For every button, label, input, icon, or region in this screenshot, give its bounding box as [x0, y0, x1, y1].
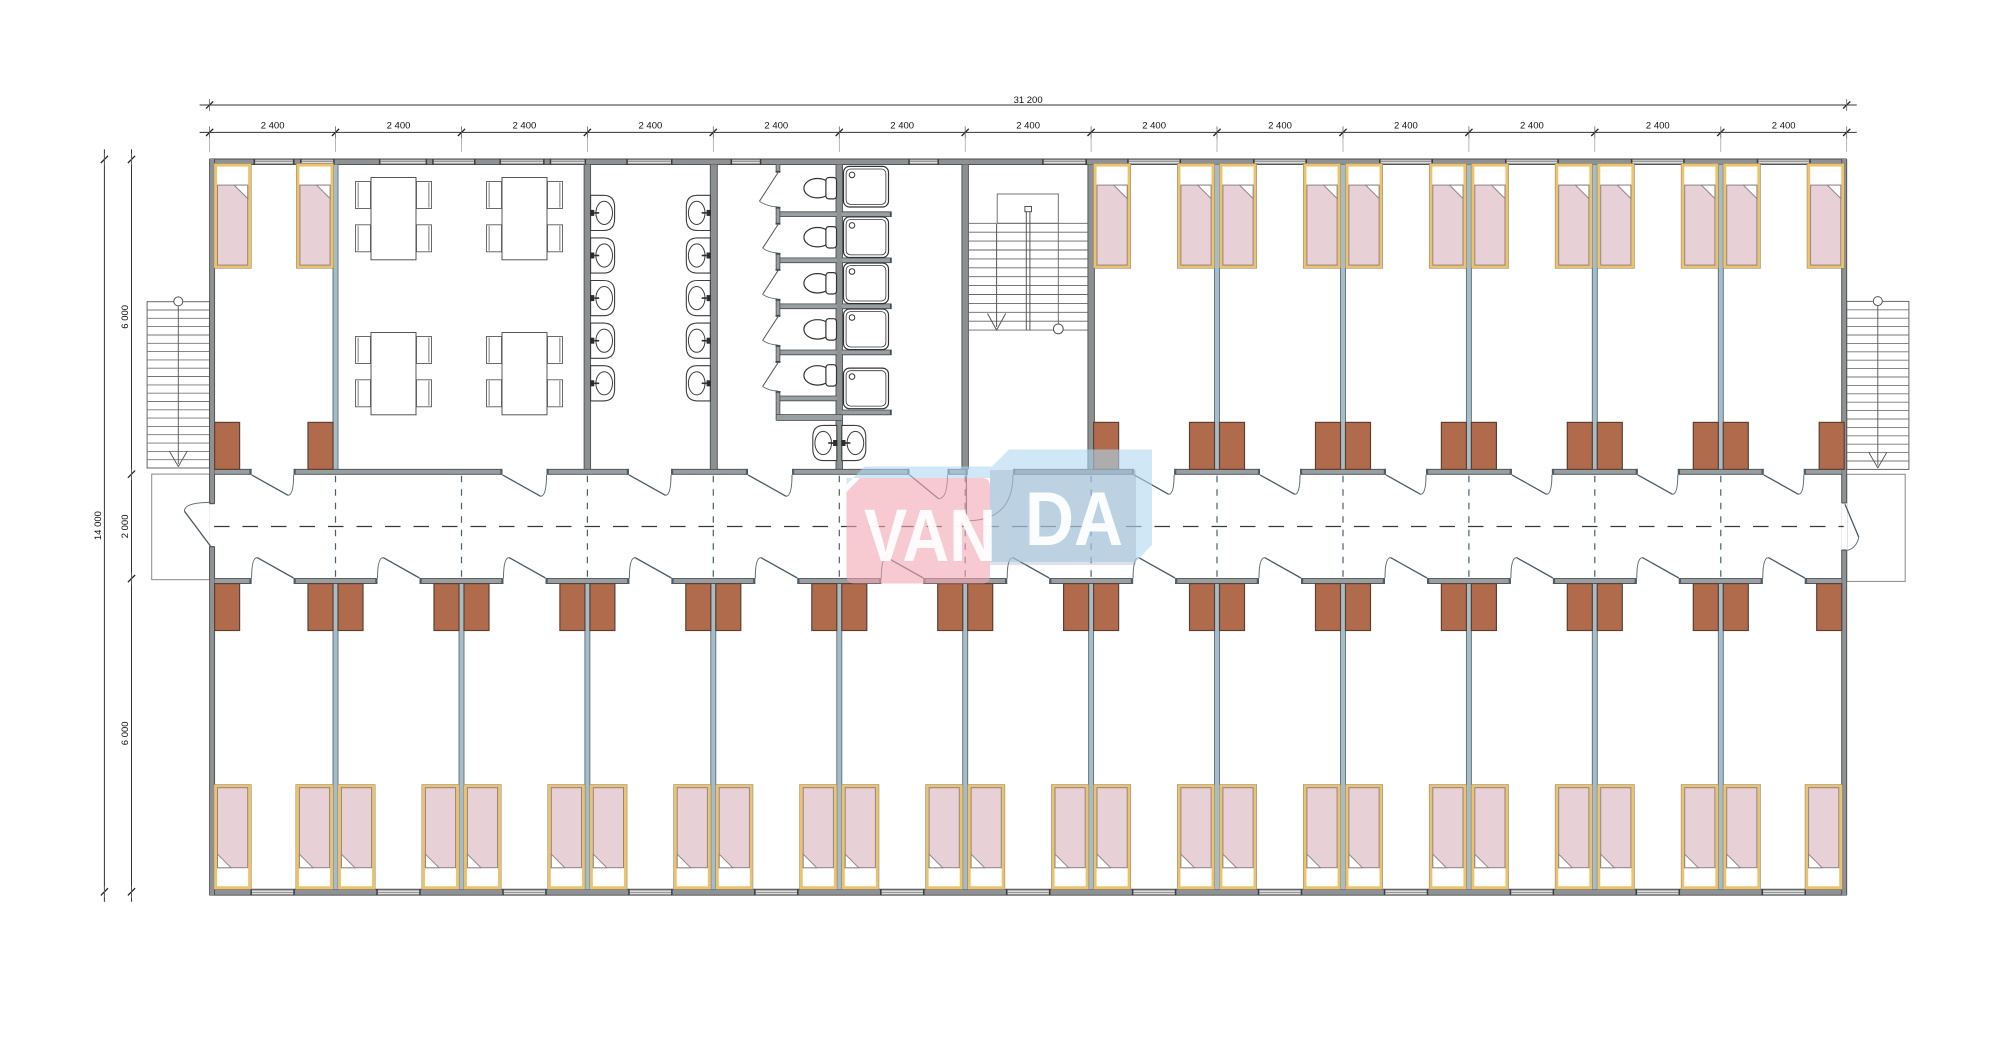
- svg-text:2 400: 2 400: [1520, 121, 1544, 132]
- svg-text:2 400: 2 400: [1394, 121, 1418, 132]
- svg-text:2 400: 2 400: [1772, 121, 1796, 132]
- svg-text:2 400: 2 400: [1142, 121, 1166, 132]
- svg-text:2 000: 2 000: [120, 515, 131, 539]
- svg-text:2 400: 2 400: [764, 121, 788, 132]
- svg-text:2 400: 2 400: [639, 121, 663, 132]
- svg-text:6 000: 6 000: [120, 721, 131, 745]
- svg-text:2 400: 2 400: [890, 121, 914, 132]
- svg-text:DA: DA: [1025, 477, 1123, 562]
- svg-text:2 400: 2 400: [261, 121, 285, 132]
- svg-text:2 400: 2 400: [1646, 121, 1670, 132]
- svg-text:2 400: 2 400: [513, 121, 537, 132]
- svg-text:2 400: 2 400: [387, 121, 411, 132]
- svg-text:6 000: 6 000: [120, 305, 131, 329]
- svg-text:VAN: VAN: [864, 494, 996, 577]
- svg-text:2 400: 2 400: [1268, 121, 1292, 132]
- svg-text:2 400: 2 400: [1016, 121, 1040, 132]
- svg-text:31 200: 31 200: [1014, 95, 1043, 106]
- svg-text:14 000: 14 000: [93, 511, 104, 540]
